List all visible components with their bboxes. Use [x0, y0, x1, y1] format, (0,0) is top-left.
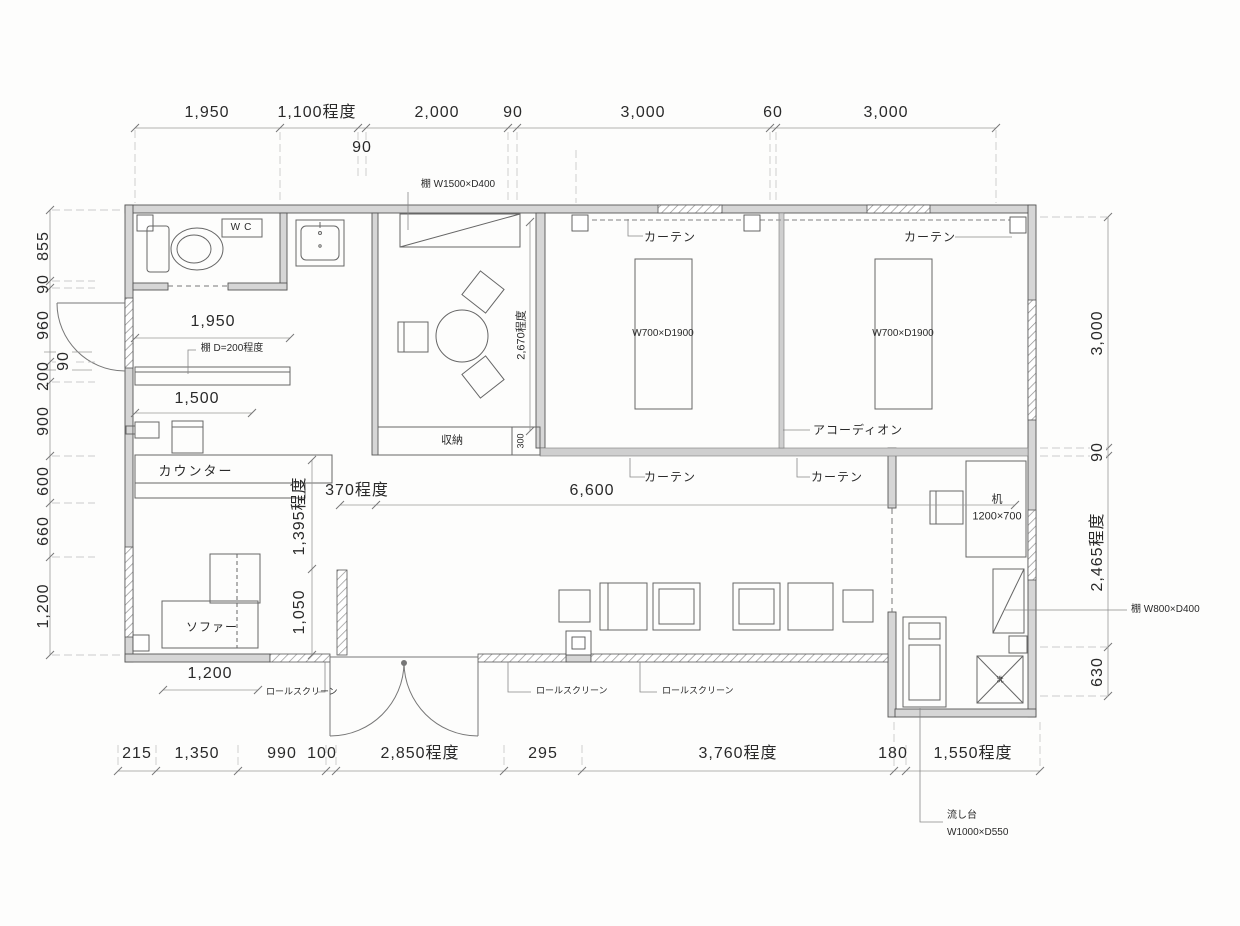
dim-top-1950: 1,950 [184, 105, 229, 121]
dim-shelf-1950: 1,950 [190, 314, 235, 330]
dim-storage-300: 300 [517, 433, 526, 448]
dim-bottom-990: 990 [267, 746, 297, 762]
dim-room-2670: 2,670程度 [517, 308, 528, 362]
sink-size-label: W1000×D550 [947, 828, 1008, 838]
dim-sofa-1200: 1,200 [187, 666, 232, 682]
dim-counter-1500: 1,500 [174, 391, 219, 407]
dim-left-900: 900 [36, 406, 52, 436]
futon-label-right: W700×D1900 [872, 329, 933, 339]
dim-right-2465: 2,465程度 [1090, 512, 1106, 591]
dim-bottom-2850: 2,850程度 [380, 746, 459, 762]
dim-top-1100: 1,100程度 [277, 105, 356, 121]
dim-left-960: 960 [36, 310, 52, 340]
futon-label-left: W700×D1900 [632, 329, 693, 339]
roll-screen-label-3: ロールスクリーン [662, 687, 734, 696]
dim-top-60: 60 [763, 105, 783, 121]
dim-hall-1395: 1,395程度 [292, 476, 308, 555]
accordion-label: アコーディオン [813, 424, 903, 436]
dim-top-3000a: 3,000 [620, 105, 665, 121]
curtain-partitions [540, 213, 1028, 456]
shelf-wall-label: 棚 D=200程度 [201, 344, 264, 354]
dim-left-855: 855 [36, 231, 52, 261]
dim-bottom-3760: 3,760程度 [698, 746, 777, 762]
curtain-label-top-left: カーテン [644, 231, 696, 243]
dim-top-90: 90 [503, 105, 523, 121]
label-leaders [188, 192, 1127, 822]
sofa-label: ソファー [186, 621, 238, 633]
dim-top-90-sub: 90 [350, 140, 374, 156]
dim-left-600: 600 [36, 466, 52, 496]
washer-label: 洗 [997, 677, 1004, 684]
sink-label: 流し台 [947, 811, 977, 821]
dim-bottom-1550: 1,550程度 [933, 746, 1012, 762]
dim-top-2000: 2,000 [414, 105, 459, 121]
dim-bottom-180: 180 [878, 746, 908, 762]
dim-bottom-1350: 1,350 [174, 746, 219, 762]
floor-plan-drawing: 1,950 1,100程度 2,000 90 3,000 60 3,000 90… [0, 0, 1240, 926]
shelf-right-label: 棚 W800×D400 [1131, 605, 1200, 615]
roll-screen-label-2: ロールスクリーン [536, 687, 608, 696]
dim-right-90: 90 [1090, 440, 1106, 464]
desk-label: 机 [992, 495, 1003, 506]
dim-right-630: 630 [1090, 657, 1106, 687]
curtain-label-bottom-left: カーテン [644, 471, 696, 483]
wc-room-label: WC [231, 223, 256, 233]
counter-label: カウンター [158, 465, 233, 478]
curtain-label-bottom-right: カーテン [811, 471, 863, 483]
dim-entry-1050: 1,050 [292, 589, 308, 634]
dim-hall-370: 370程度 [325, 483, 389, 499]
shelf-top-label: 棚 W1500×D400 [421, 180, 495, 190]
dim-bottom-215: 215 [122, 746, 152, 762]
desk-size-label: 1200×700 [972, 512, 1021, 523]
curtain-label-top-right: カーテン [904, 231, 956, 243]
dim-left-90b: 90 [56, 349, 72, 373]
dim-left-660: 660 [36, 516, 52, 546]
dim-bottom-100: 100 [307, 746, 337, 762]
dim-left-1200: 1,200 [36, 583, 52, 628]
dim-hall-6600: 6,600 [569, 483, 614, 499]
roll-screen-label-1: ロールスクリーン [266, 688, 338, 697]
dim-top-3000b: 3,000 [863, 105, 908, 121]
storage-label: 収納 [441, 436, 463, 447]
dim-bottom-295: 295 [528, 746, 558, 762]
dim-left-200: 200 [36, 361, 52, 391]
dim-right-3000: 3,000 [1090, 310, 1106, 355]
doors [57, 303, 478, 736]
dim-left-90a: 90 [36, 274, 52, 294]
